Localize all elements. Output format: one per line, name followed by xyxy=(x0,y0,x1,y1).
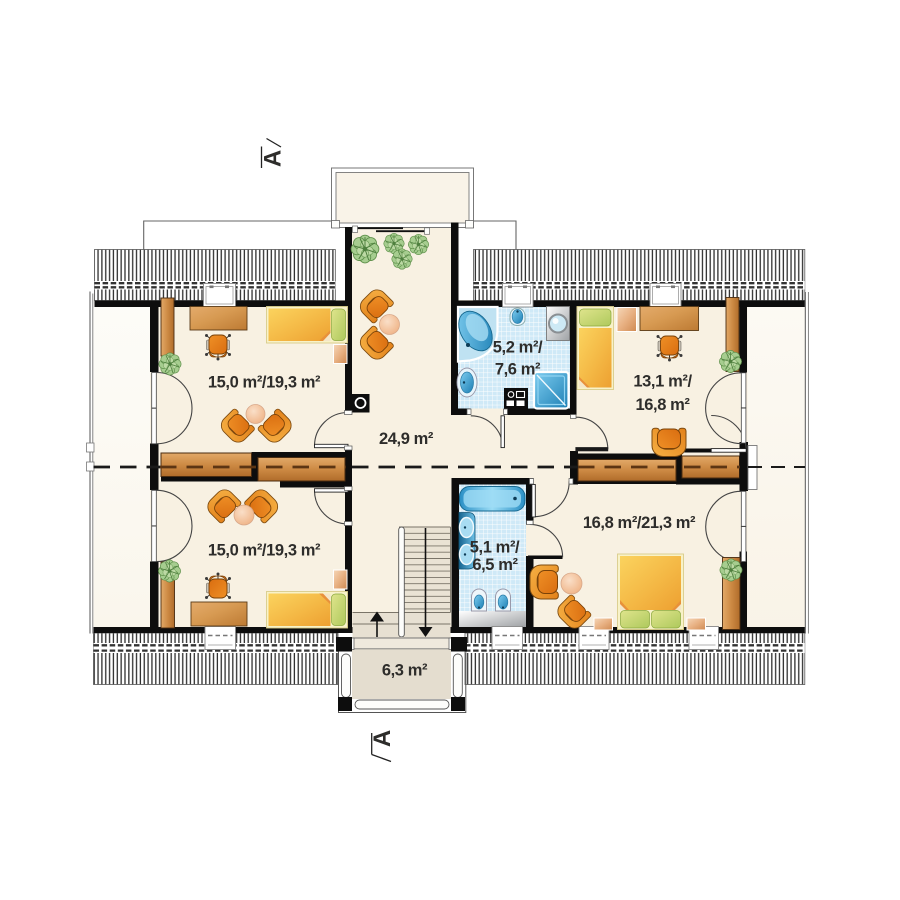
svg-text:13,1 m²/: 13,1 m²/ xyxy=(633,373,692,391)
svg-text:16,8 m²: 16,8 m² xyxy=(635,396,690,414)
svg-text:6,5 m²: 6,5 m² xyxy=(472,556,518,574)
svg-text:5,1 m²/: 5,1 m²/ xyxy=(470,539,520,557)
svg-text:15,0 m²/19,3 m²: 15,0 m²/19,3 m² xyxy=(208,542,321,560)
svg-text:A: A xyxy=(260,150,287,167)
svg-text:5,2 m²/: 5,2 m²/ xyxy=(493,339,543,357)
svg-text:24,9 m²: 24,9 m² xyxy=(379,430,434,448)
svg-text:6,3 m²: 6,3 m² xyxy=(382,662,428,680)
svg-text:7,6 m²: 7,6 m² xyxy=(495,361,541,379)
svg-text:16,8 m²/21,3 m²: 16,8 m²/21,3 m² xyxy=(583,514,696,532)
svg-text:A: A xyxy=(369,730,396,747)
svg-text:15,0 m²/19,3 m²: 15,0 m²/19,3 m² xyxy=(208,374,321,392)
